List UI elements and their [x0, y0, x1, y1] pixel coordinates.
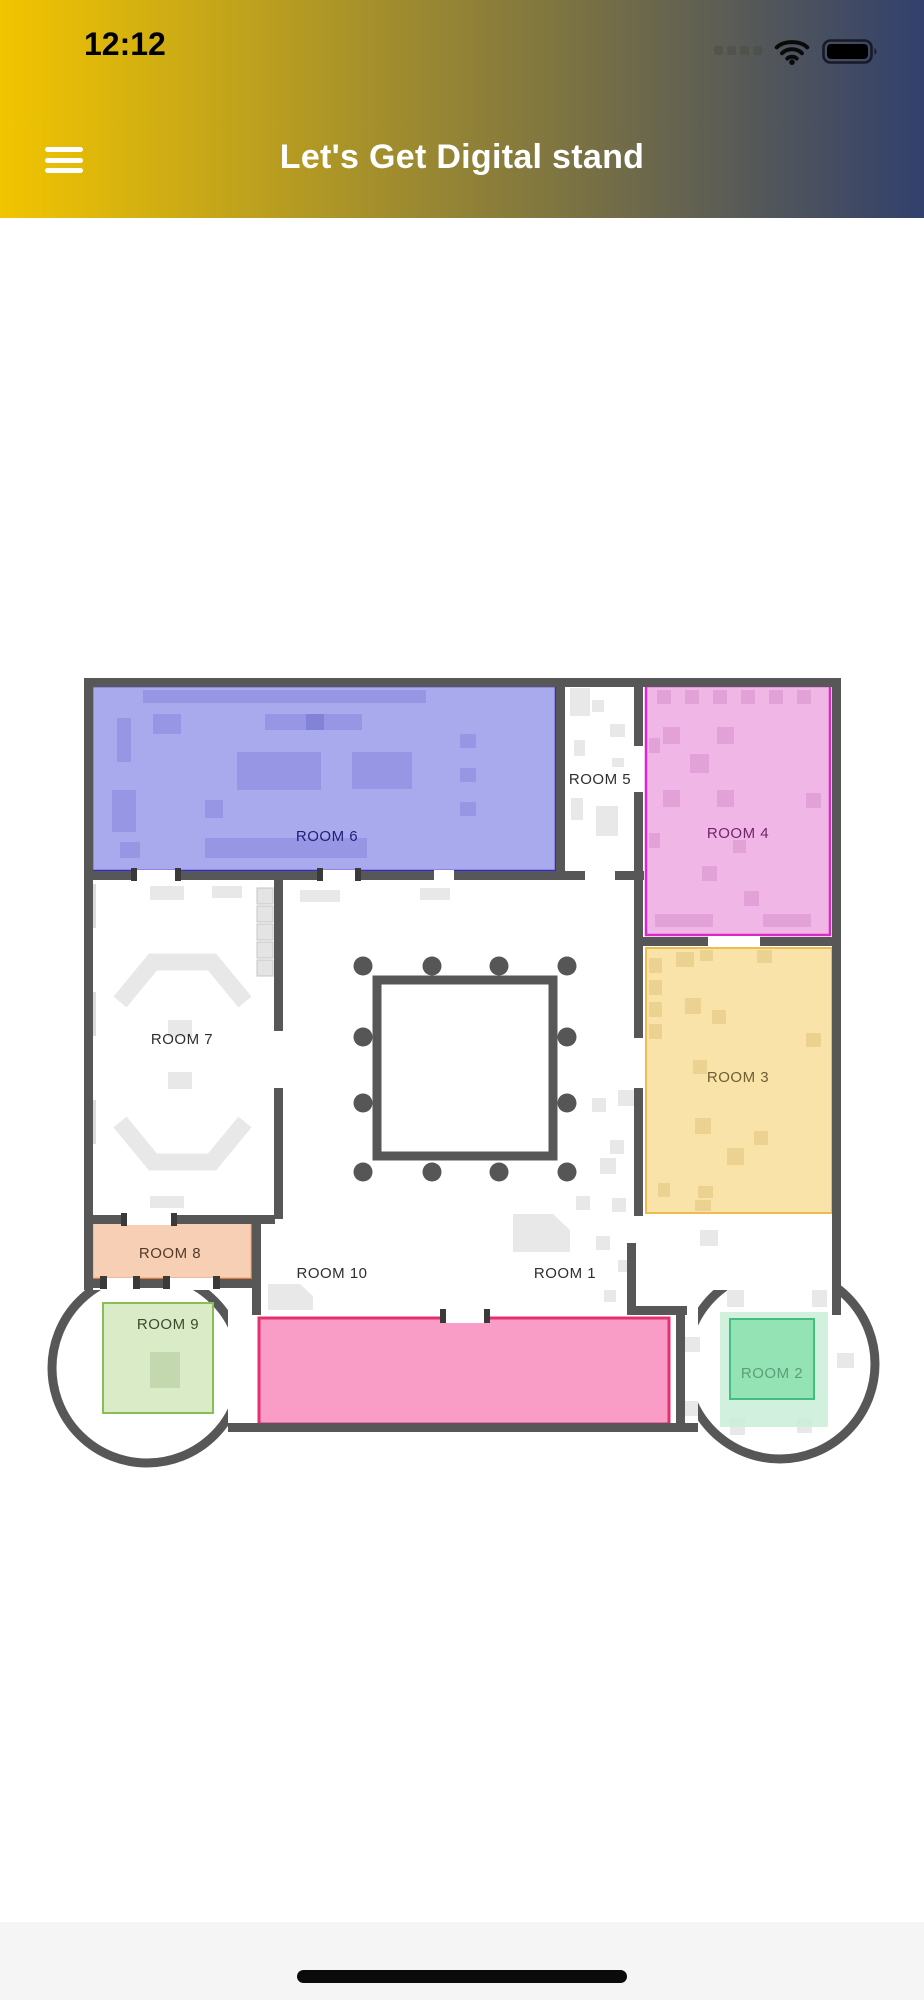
room-9-label: ROOM 9 [137, 1316, 199, 1333]
pink-hall[interactable] [259, 1318, 669, 1424]
floor-plan[interactable]: ROOM 6 ROOM 5 ROOM 4 ROOM 3 ROOM 7 ROOM … [0, 640, 924, 1500]
home-indicator[interactable] [297, 1970, 627, 1983]
courtyard-table [377, 980, 553, 1156]
room-3-label: ROOM 3 [707, 1069, 769, 1086]
room-2-label: ROOM 2 [741, 1365, 803, 1382]
room-2-area[interactable] [730, 1319, 814, 1399]
status-time: 12:12 [84, 26, 166, 63]
header: 12:12 Let's Get Digital stand [0, 0, 924, 218]
page-title: Let's Get Digital stand [0, 138, 924, 177]
room-4[interactable] [646, 686, 830, 935]
room-7-label: ROOM 7 [151, 1031, 213, 1048]
room-6-label: ROOM 6 [296, 828, 358, 845]
bottom-bar [0, 1922, 924, 2000]
pink-hall-area[interactable] [259, 1318, 669, 1424]
room-5-label: ROOM 5 [569, 771, 631, 788]
room-1-label: ROOM 1 [534, 1265, 596, 1282]
status-icons [714, 36, 880, 66]
room-8-label: ROOM 8 [139, 1245, 201, 1262]
courtyard [354, 957, 577, 1182]
battery-icon [822, 39, 880, 64]
room-4-area[interactable] [646, 686, 830, 935]
cellular-signal-icon [714, 46, 762, 57]
wifi-icon [774, 38, 810, 65]
room-10-label: ROOM 10 [296, 1265, 367, 1282]
room-4-label: ROOM 4 [707, 825, 769, 842]
